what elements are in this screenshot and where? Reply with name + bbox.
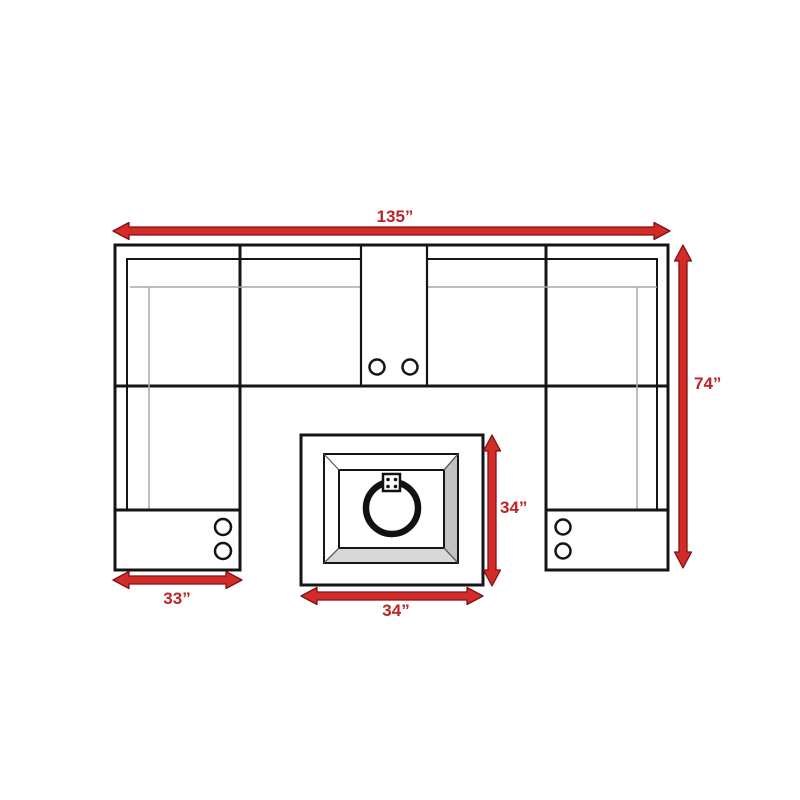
sofa-back-section-outline (115, 245, 668, 386)
fire-pit-table (301, 435, 483, 585)
left-end-cupholder-bottom (215, 543, 231, 559)
dim-arrow-fire-pit-depth (484, 435, 501, 586)
right-end-cupholder-bottom (556, 544, 571, 559)
igniter-dot (394, 478, 398, 482)
igniter-dot (386, 478, 390, 482)
dim-label-overall-width: 135” (377, 207, 414, 226)
right-end-cupholder-top (556, 520, 571, 535)
dim-arrow-end-table-width (113, 572, 242, 589)
sofa-dimension-diagram: 135” 74” 33” 34” 34” (0, 0, 800, 800)
sectional-sofa (115, 245, 668, 570)
igniter (383, 474, 400, 491)
igniter-dot (394, 485, 398, 489)
left-end-table (115, 510, 240, 570)
igniter-dot (386, 485, 390, 489)
dim-label-overall-depth: 74” (694, 374, 721, 393)
left-end-cupholder-top (215, 519, 231, 535)
diagram-page: 135” 74” 33” 34” 34” (0, 0, 800, 800)
dim-label-fire-pit-depth: 34” (500, 498, 527, 517)
fire-pit-bevel-bottom (324, 548, 458, 563)
dim-label-end-table-width: 33” (163, 589, 190, 608)
center-console (361, 245, 427, 386)
console-cupholder-left (370, 360, 385, 375)
dim-label-fire-pit-width: 34” (382, 601, 409, 620)
right-end-table (546, 510, 668, 570)
dim-arrow-overall-depth (675, 245, 692, 568)
igniter-box (383, 474, 400, 491)
bevel-corner-top-left (324, 454, 339, 470)
console-cupholder-right (403, 360, 418, 375)
fire-pit-bevel-right (444, 454, 458, 563)
